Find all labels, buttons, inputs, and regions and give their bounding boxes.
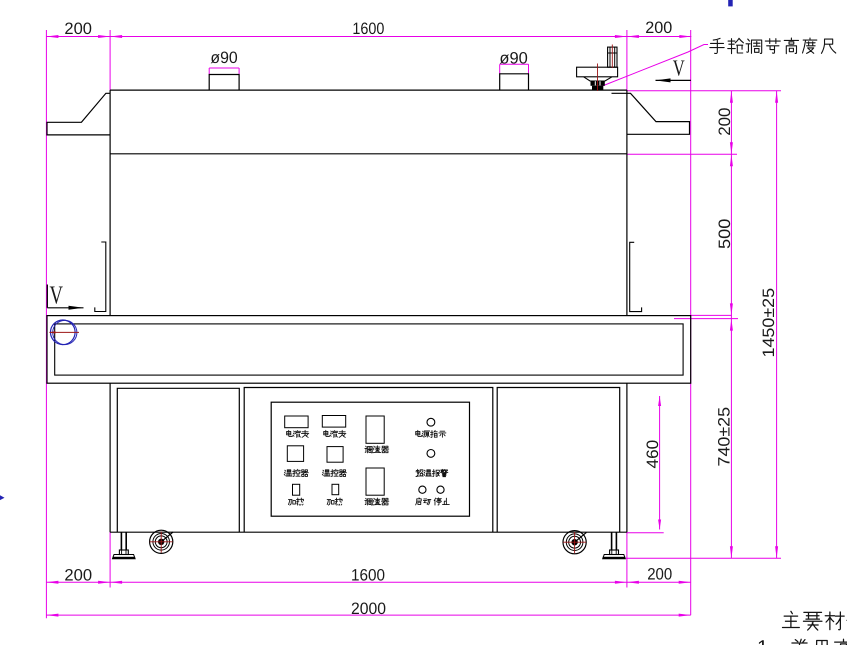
svg-text:1: 1 [757,637,768,645]
svg-text:200: 200 [64,20,92,38]
svg-text:200: 200 [647,565,672,583]
svg-text:V: V [50,280,64,309]
svg-text:2000: 2000 [351,600,386,618]
svg-text:1450±25: 1450±25 [760,288,778,358]
svg-text:ø90: ø90 [210,49,237,67]
svg-text:460: 460 [644,440,662,469]
svg-text:500: 500 [716,219,734,249]
svg-text:200: 200 [716,108,734,136]
svg-text:V: V [673,56,685,81]
svg-text:1600: 1600 [352,20,384,38]
svg-text:1600: 1600 [351,567,385,585]
svg-text:ø90: ø90 [499,49,527,67]
svg-text:200: 200 [645,19,672,37]
svg-text:200: 200 [64,566,92,584]
svg-text:740±25: 740±25 [716,407,734,467]
